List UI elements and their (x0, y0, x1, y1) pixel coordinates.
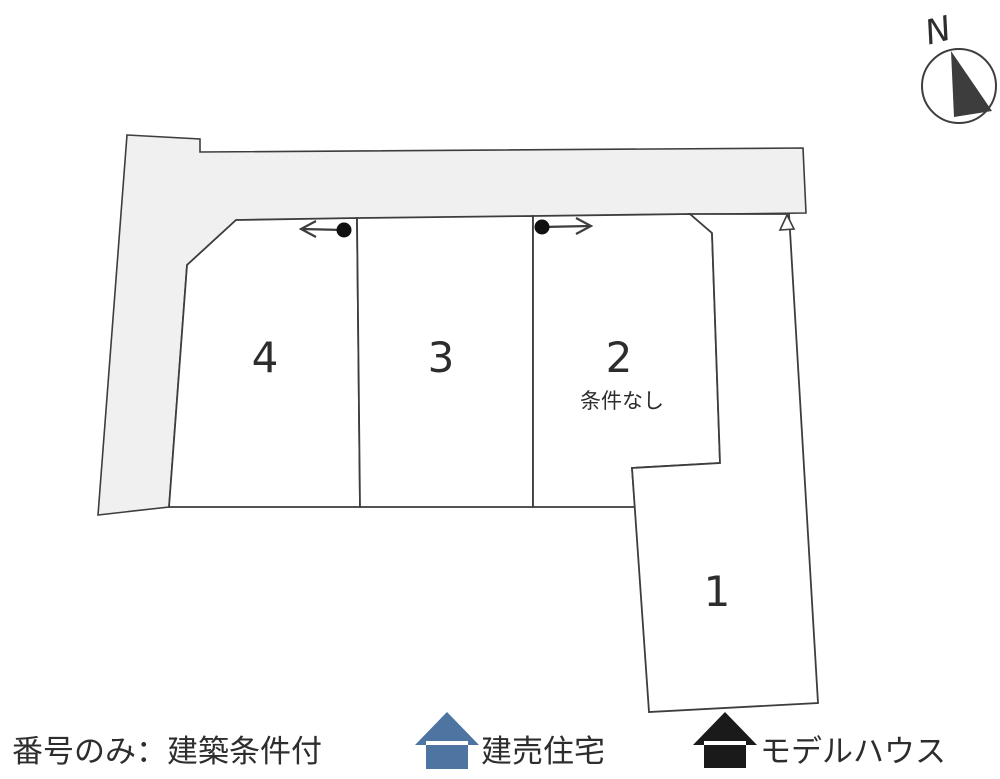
lot-map-canvas: N 4 3 2 条件なし 1 番号のみ：建築条件付 建売住宅 モデルハウス (0, 0, 1000, 779)
lot-2-note: 条件なし (580, 389, 664, 413)
legend-condition-note: 番号のみ：建築条件付 (12, 734, 322, 770)
entrance-dot (337, 223, 352, 238)
legend-built-for-sale-label: 建売住宅 (481, 734, 605, 770)
lot-1-number: 1 (704, 567, 731, 616)
legend-model-house-label: モデルハウス (760, 734, 946, 770)
lot-3-number: 3 (428, 333, 455, 382)
lot-4-number: 4 (252, 333, 279, 382)
lot-2-number: 2 (606, 333, 633, 382)
lot-map-figure: N 4 3 2 条件なし 1 番号のみ：建築条件付 建売住宅 モデルハウス (0, 0, 1000, 779)
entrance-dot (535, 220, 550, 235)
